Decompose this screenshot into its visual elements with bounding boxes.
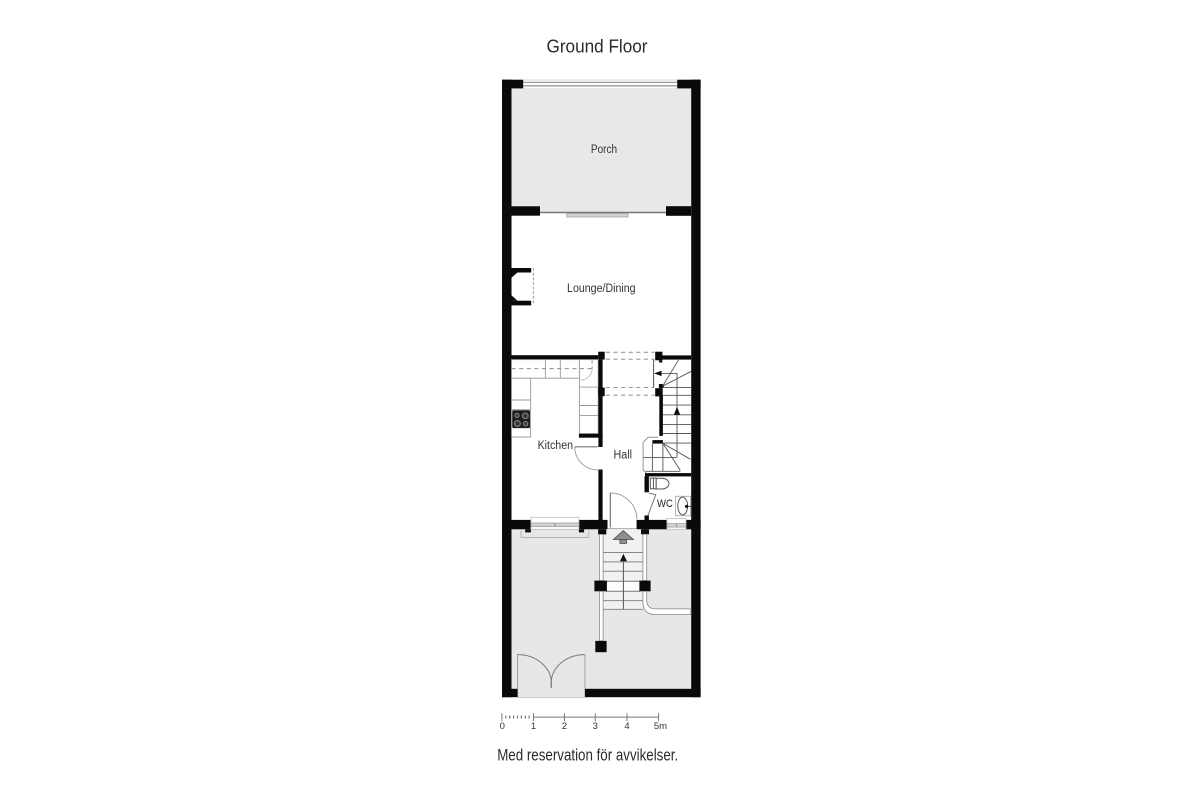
svg-text:Hall: Hall — [614, 450, 633, 462]
svg-text:4: 4 — [624, 721, 629, 732]
svg-text:2: 2 — [562, 721, 567, 732]
svg-text:1: 1 — [531, 721, 536, 732]
svg-text:Lounge/Dining: Lounge/Dining — [567, 283, 636, 295]
svg-text:5m: 5m — [654, 721, 667, 732]
svg-text:0: 0 — [500, 721, 505, 732]
svg-text:WC: WC — [657, 498, 673, 510]
svg-text:Kitchen: Kitchen — [538, 440, 573, 452]
svg-text:Med reservation för avvikelser: Med reservation för avvikelser. — [497, 746, 678, 765]
svg-text:Ground Floor: Ground Floor — [547, 36, 648, 57]
svg-text:3: 3 — [593, 721, 598, 732]
svg-text:Porch: Porch — [591, 144, 617, 156]
